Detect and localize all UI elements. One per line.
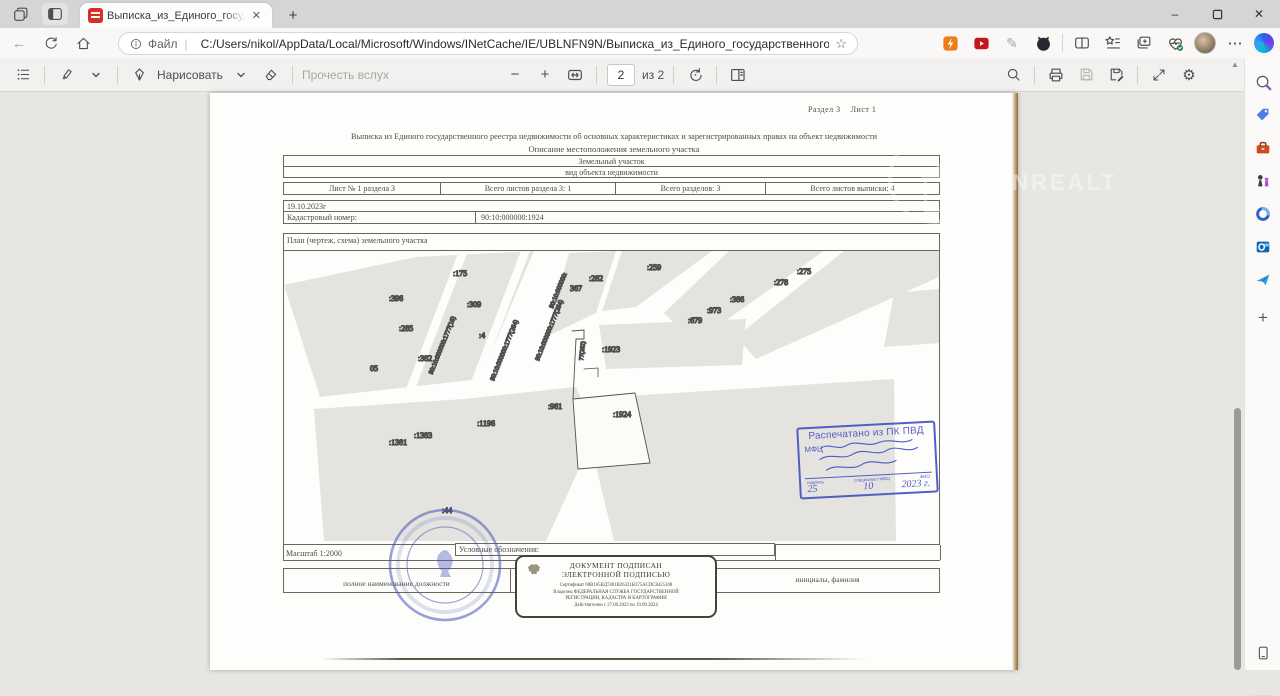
sidebar-phone-icon[interactable] bbox=[1253, 643, 1273, 663]
page-edge bbox=[1012, 93, 1018, 670]
pvd-print-stamp: Распечатано из ПК ПВД МФЦ подпись специа… bbox=[796, 420, 939, 499]
svg-text::386: :386 bbox=[730, 295, 744, 304]
copilot-icon[interactable] bbox=[1254, 33, 1274, 53]
svg-text:90:10:000000:1777(264): 90:10:000000:1777(264) bbox=[534, 299, 565, 362]
scrollbar-up-arrow[interactable]: ▲ bbox=[1231, 60, 1239, 69]
pdf-viewer[interactable]: Раздел 3 Лист 1 Выписка из Единого госуд… bbox=[0, 92, 1244, 670]
signature-stamp: ДОКУМЕНТ ПОДПИСАН ЭЛЕКТРОННОЙ ПОДПИСЬЮ С… bbox=[515, 555, 717, 618]
back-icon[interactable]: ← bbox=[6, 31, 32, 55]
cadastral-label-cell: Кадастровый номер: bbox=[283, 211, 476, 224]
rotate-icon[interactable] bbox=[682, 62, 708, 88]
more-menu-icon[interactable]: ⋯ bbox=[1223, 31, 1247, 55]
svg-text::961: :961 bbox=[548, 402, 562, 411]
tab-close-icon[interactable]: ✕ bbox=[249, 8, 264, 23]
edge-sidebar: + bbox=[1244, 58, 1280, 670]
window-minimize-button[interactable]: – bbox=[1154, 0, 1196, 28]
extension-adguard-icon[interactable] bbox=[938, 31, 962, 55]
zoom-out-icon[interactable]: − bbox=[502, 62, 528, 88]
svg-text:05: 05 bbox=[370, 364, 378, 373]
new-tab-button[interactable]: + bbox=[282, 4, 304, 26]
svg-text::275: :275 bbox=[797, 267, 811, 276]
browser-essentials-icon[interactable] bbox=[1163, 31, 1187, 55]
svg-text::1923: :1923 bbox=[602, 345, 620, 354]
info-icon bbox=[129, 37, 143, 51]
refresh-icon[interactable] bbox=[38, 31, 64, 55]
sheet-info-cell: Всего листов раздела 3: 1 bbox=[440, 182, 616, 195]
pdf-settings-gear-icon[interactable]: ⚙ bbox=[1176, 62, 1202, 88]
svg-text::285: :285 bbox=[399, 324, 413, 333]
svg-text::396: :396 bbox=[389, 294, 403, 303]
browser-tab[interactable]: Выписка_из_Единого_государст... ✕ bbox=[80, 3, 272, 28]
svg-text::282: :282 bbox=[589, 274, 603, 283]
fullscreen-icon[interactable] bbox=[1146, 62, 1172, 88]
save-as-icon[interactable] bbox=[1103, 62, 1129, 88]
extension-video-icon[interactable] bbox=[969, 31, 993, 55]
cadastral-number-cell: 90:10:000000:1924 bbox=[475, 211, 940, 224]
browser-tab-bar: Выписка_из_Единого_государст... ✕ + – ✕ bbox=[0, 0, 1280, 28]
window-close-button[interactable]: ✕ bbox=[1238, 0, 1280, 28]
draw-label[interactable]: Нарисовать bbox=[157, 68, 223, 82]
sheet-info-cell: Лист № 1 раздела 3 bbox=[283, 182, 441, 195]
svg-text:367: 367 bbox=[570, 284, 582, 293]
svg-text::4: :4 bbox=[479, 331, 485, 340]
favorite-star-icon[interactable]: ☆ bbox=[835, 36, 847, 52]
doc-section-line: Раздел 3 Лист 1 bbox=[808, 105, 876, 114]
pdf-file-icon bbox=[88, 8, 103, 23]
cadastral-map: :175:396:309:285:4:38205:282:259367:275:… bbox=[284, 251, 939, 544]
tab-layout-icon[interactable] bbox=[42, 3, 68, 25]
search-icon[interactable] bbox=[1000, 62, 1026, 88]
draw-chevron-icon[interactable] bbox=[228, 62, 254, 88]
profile-avatar[interactable] bbox=[1194, 32, 1216, 54]
fit-width-icon[interactable] bbox=[562, 62, 588, 88]
workspaces-icon[interactable] bbox=[8, 3, 34, 25]
favorites-icon[interactable] bbox=[1101, 31, 1125, 55]
split-screen-icon[interactable] bbox=[1070, 31, 1094, 55]
doc-title: Выписка из Единого государственного реес… bbox=[244, 132, 984, 141]
scrollbar[interactable] bbox=[1232, 92, 1244, 670]
tab-title: Выписка_из_Единого_государст... bbox=[107, 10, 245, 22]
svg-text:77(262): 77(262) bbox=[578, 341, 587, 361]
window-maximize-button[interactable] bbox=[1196, 0, 1238, 28]
svg-text::1381: :1381 bbox=[389, 438, 407, 447]
round-stamp bbox=[385, 505, 505, 625]
print-icon[interactable] bbox=[1043, 62, 1069, 88]
extension-github-icon[interactable] bbox=[1031, 31, 1055, 55]
svg-text::679: :679 bbox=[688, 316, 702, 325]
url-text: C:/Users/nikol/AppData/Local/Microsoft/W… bbox=[201, 37, 830, 51]
pdf-toolbar: Нарисовать Прочесть вслух − + 2 из 2 bbox=[0, 58, 1244, 92]
doc-subtitle: Описание местоположения земельного участ… bbox=[244, 144, 984, 154]
scan-fold-line bbox=[320, 658, 865, 660]
save-icon[interactable] bbox=[1073, 62, 1099, 88]
svg-text::1383: :1383 bbox=[414, 431, 432, 440]
sidebar-m365-icon[interactable] bbox=[1253, 204, 1273, 224]
scrollbar-thumb[interactable] bbox=[1234, 408, 1241, 670]
svg-text::309: :309 bbox=[467, 300, 481, 309]
sidebar-games-icon[interactable] bbox=[1253, 171, 1273, 191]
svg-text::259: :259 bbox=[647, 263, 661, 272]
page-number-input[interactable]: 2 bbox=[607, 64, 635, 86]
highlighter-icon[interactable] bbox=[53, 62, 79, 88]
scale-label: Масштаб 1:2000 bbox=[286, 549, 342, 558]
zoom-in-icon[interactable]: + bbox=[532, 62, 558, 88]
sheet-info-cell: Всего разделов: 3 bbox=[615, 182, 766, 195]
sidebar-add-icon[interactable]: + bbox=[1253, 308, 1273, 328]
home-icon[interactable] bbox=[70, 31, 96, 55]
browser-toolbar: ← Файл | C:/Users/nikol/AppData/Local/Mi… bbox=[0, 28, 1280, 58]
toc-icon[interactable] bbox=[10, 62, 36, 88]
footer-name-label: инициалы, фамилия bbox=[715, 575, 940, 584]
svg-text::382: :382 bbox=[418, 354, 432, 363]
svg-text::175: :175 bbox=[453, 269, 467, 278]
document-page: Раздел 3 Лист 1 Выписка из Единого госуд… bbox=[210, 93, 1018, 670]
sidebar-outlook-icon[interactable] bbox=[1253, 237, 1273, 257]
highlighter-chevron-icon[interactable] bbox=[83, 62, 109, 88]
read-aloud-button[interactable]: Прочесть вслух bbox=[302, 68, 389, 82]
url-scheme-label: Файл bbox=[148, 37, 178, 51]
object-type-caption-cell: вид объекта недвижимости bbox=[283, 166, 940, 178]
collections-icon[interactable] bbox=[1132, 31, 1156, 55]
address-bar[interactable]: Файл | C:/Users/nikol/AppData/Local/Micr… bbox=[118, 32, 858, 55]
sidebar-drop-icon[interactable] bbox=[1253, 270, 1273, 290]
eraser-icon[interactable] bbox=[258, 62, 284, 88]
page-total-label: из 2 bbox=[642, 68, 664, 82]
svg-text::1196: :1196 bbox=[477, 419, 495, 428]
draw-pen-icon[interactable] bbox=[126, 62, 152, 88]
sidebar-search-icon[interactable] bbox=[1253, 72, 1273, 92]
svg-text::973: :973 bbox=[707, 306, 721, 315]
extension-edit-icon[interactable]: ✎ bbox=[1000, 31, 1024, 55]
svg-text::278: :278 bbox=[774, 278, 788, 287]
sidebar-tools-icon[interactable] bbox=[1253, 138, 1273, 158]
sidebar-shopping-icon[interactable] bbox=[1253, 105, 1273, 125]
svg-text::1924: :1924 bbox=[613, 410, 631, 419]
sheet-info-cell: Всего листов выписки: 4 bbox=[765, 182, 940, 195]
page-view-icon[interactable] bbox=[725, 62, 751, 88]
eagle-emblem-icon bbox=[527, 563, 541, 579]
